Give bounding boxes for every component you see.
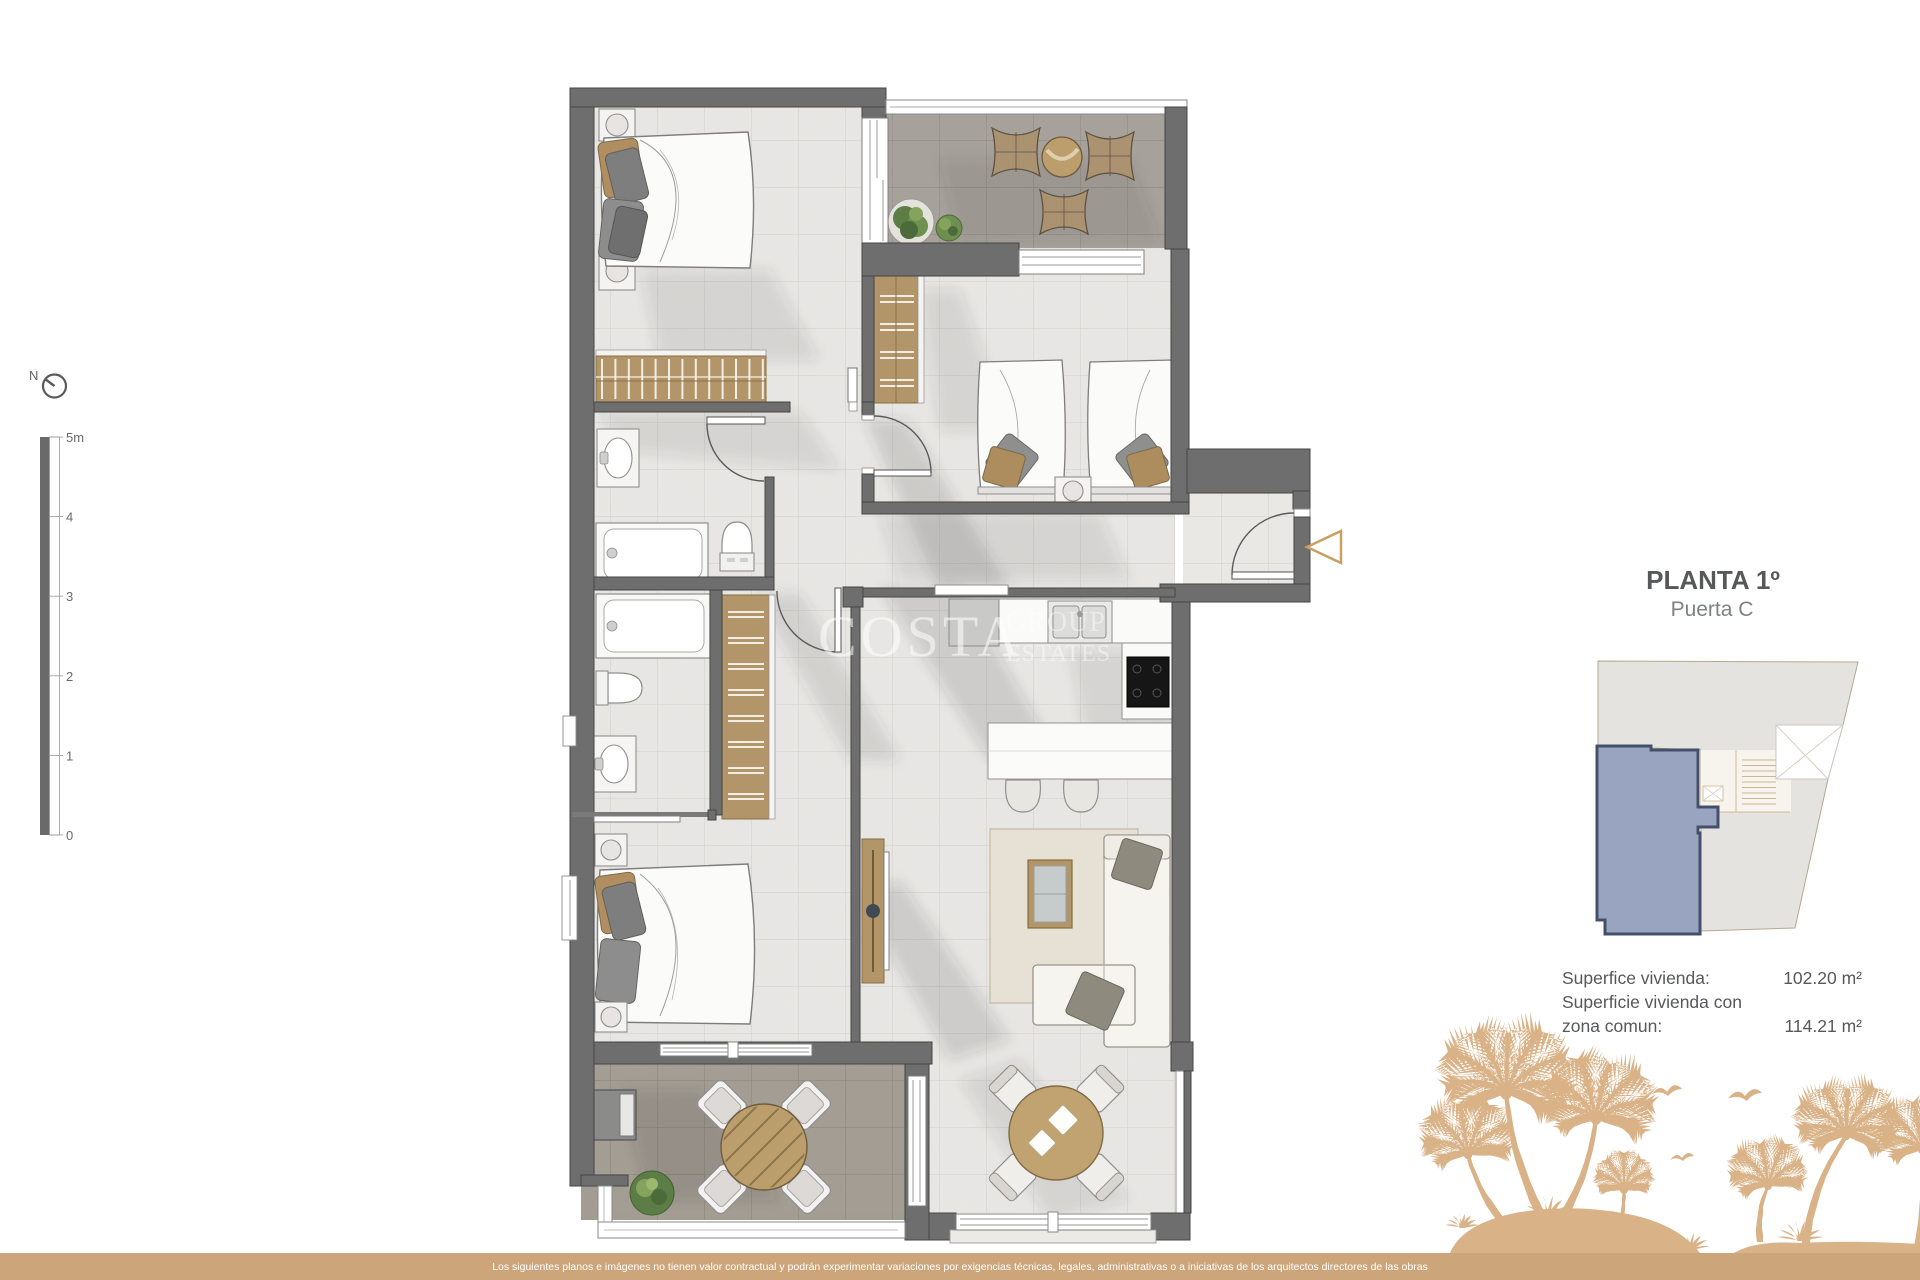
svg-text:1: 1: [66, 748, 73, 763]
svg-text:COSTA: COSTA: [818, 604, 1024, 669]
svg-text:4: 4: [66, 510, 73, 525]
svg-text:5m: 5m: [66, 430, 84, 445]
svg-text:Los siguientes planos e imágen: Los siguientes planos e imágenes no tien…: [492, 1261, 1428, 1273]
svg-text:102.20 m²: 102.20 m²: [1783, 968, 1862, 988]
svg-text:GROUP: GROUP: [1006, 607, 1106, 638]
svg-text:zona comun:: zona comun:: [1562, 1016, 1662, 1036]
svg-text:N: N: [29, 368, 38, 383]
svg-text:0: 0: [66, 828, 73, 843]
svg-text:Superficie vivienda con: Superficie vivienda con: [1562, 992, 1742, 1012]
svg-text:Superfice vivienda:: Superfice vivienda:: [1562, 968, 1710, 988]
svg-text:114.21 m²: 114.21 m²: [1785, 1016, 1863, 1036]
svg-text:PLANTA 1º: PLANTA 1º: [1646, 565, 1780, 595]
svg-text:3: 3: [66, 589, 73, 604]
svg-text:Puerta C: Puerta C: [1671, 598, 1754, 621]
svg-text:2: 2: [66, 669, 73, 684]
svg-text:ESTATES: ESTATES: [1006, 641, 1111, 667]
